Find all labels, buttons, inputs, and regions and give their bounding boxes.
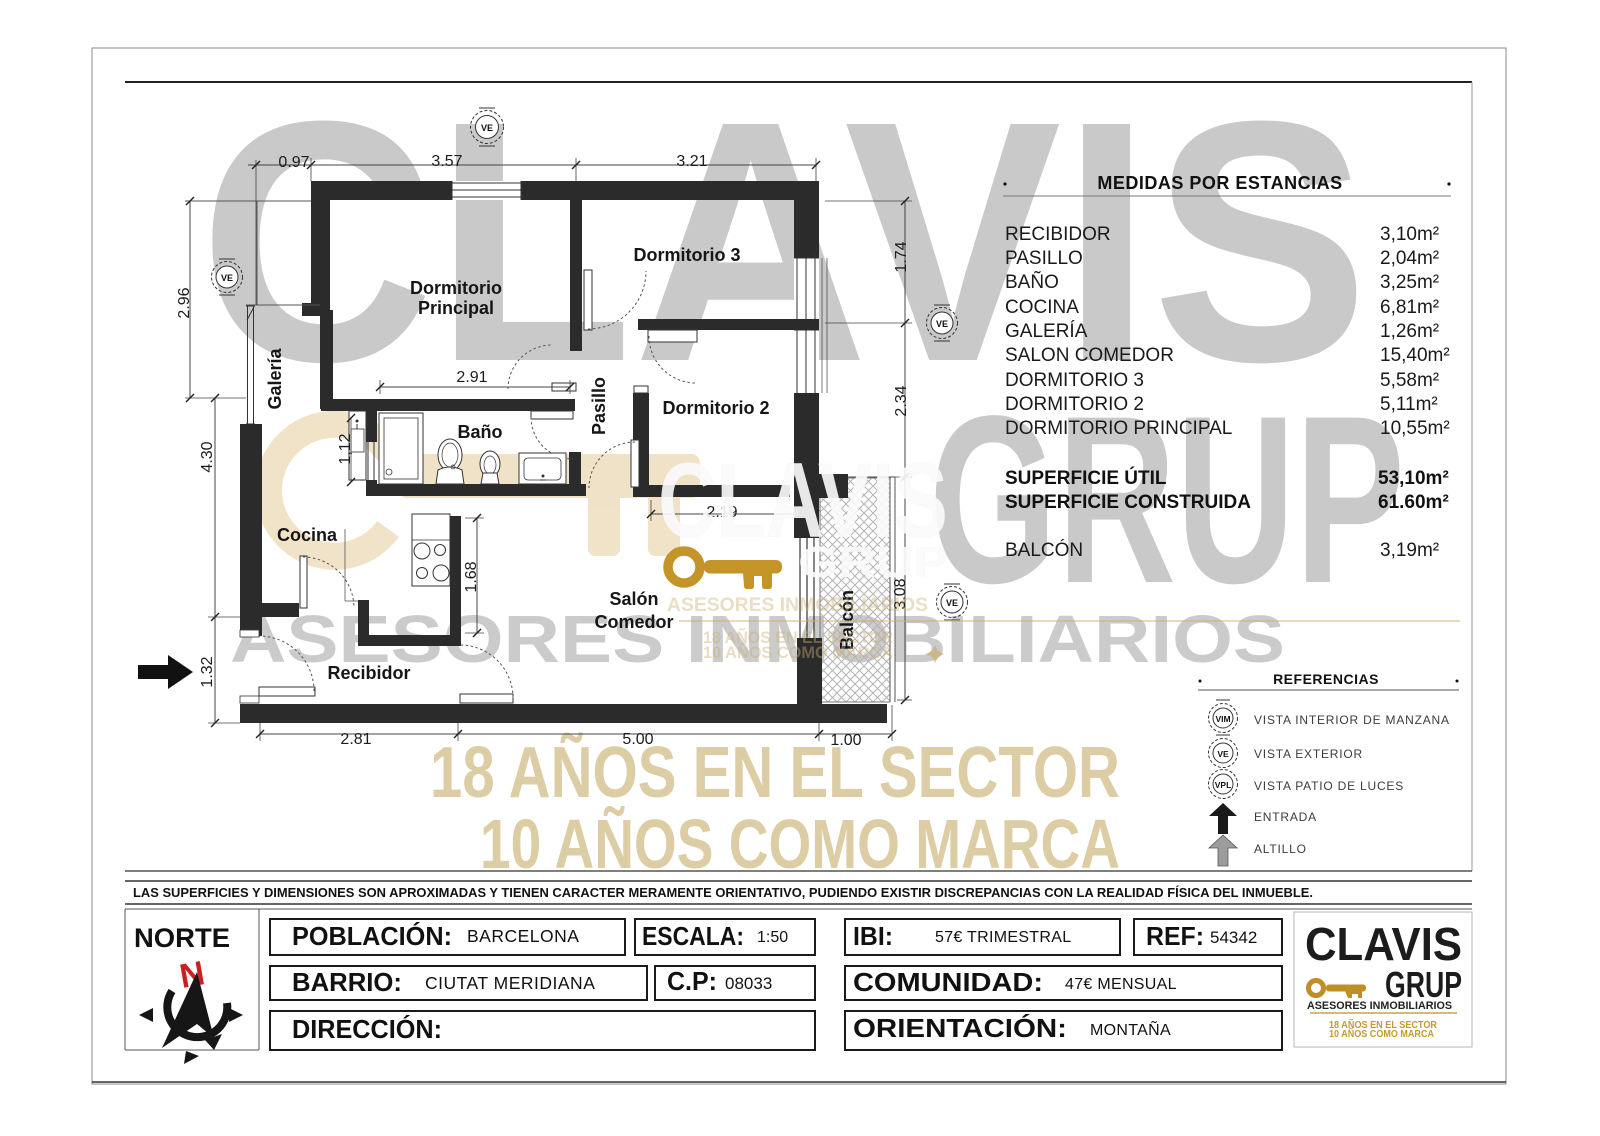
svg-text:SALON COMEDOR: SALON COMEDOR [1005, 345, 1174, 366]
svg-text:VE: VE [221, 273, 233, 283]
svg-text:CIUTAT MERIDIANA: CIUTAT MERIDIANA [425, 973, 595, 993]
svg-text:2,04m²: 2,04m² [1380, 248, 1439, 269]
svg-text:GRUP: GRUP [798, 538, 948, 587]
svg-text:ASESORES INMOBILIARIOS: ASESORES INMOBILIARIOS [667, 595, 928, 616]
svg-text:3.57: 3.57 [431, 153, 462, 170]
svg-text:5.00: 5.00 [622, 731, 653, 748]
svg-text:1:50: 1:50 [757, 929, 788, 946]
svg-text:Recibidor: Recibidor [327, 663, 410, 683]
svg-text:PASILLO: PASILLO [1005, 248, 1083, 269]
svg-text:COCINA: COCINA [1005, 297, 1079, 318]
svg-text:1,12: 1,12 [337, 433, 354, 464]
svg-text:NORTE: NORTE [134, 923, 230, 953]
svg-text:54342: 54342 [1210, 928, 1257, 947]
svg-text:REF:: REF: [1146, 921, 1204, 951]
svg-text:Dormitorio 3: Dormitorio 3 [633, 245, 740, 265]
svg-text:DORMITORIO 3: DORMITORIO 3 [1005, 370, 1144, 391]
svg-text:2.34: 2.34 [893, 385, 910, 416]
svg-text:Salón: Salón [609, 589, 658, 609]
svg-text:DORMITORIO 2: DORMITORIO 2 [1005, 394, 1144, 415]
svg-text:SUPERFICIE ÚTIL: SUPERFICIE ÚTIL [1005, 467, 1167, 489]
svg-text:Dormitorio 2: Dormitorio 2 [662, 398, 769, 418]
svg-text:53,10m²: 53,10m² [1378, 468, 1449, 489]
svg-text:57€ TRIMESTRAL: 57€ TRIMESTRAL [935, 929, 1071, 946]
svg-text:5,58m²: 5,58m² [1380, 370, 1439, 391]
svg-text:COMUNIDAD:: COMUNIDAD: [853, 967, 1043, 997]
svg-text:POBLACIÓN:: POBLACIÓN: [292, 921, 452, 951]
svg-text:1,26m²: 1,26m² [1380, 321, 1439, 342]
svg-text:ALTILLO: ALTILLO [1254, 842, 1307, 856]
svg-text:BARCELONA: BARCELONA [467, 926, 579, 946]
svg-text:1.00: 1.00 [830, 732, 861, 749]
svg-text:ASESORES INMOBILIARIOS: ASESORES INMOBILIARIOS [1307, 1000, 1452, 1012]
svg-text:ENTRADA: ENTRADA [1254, 810, 1317, 824]
svg-text:6,81m²: 6,81m² [1380, 297, 1439, 318]
svg-text:Galería: Galería [265, 347, 285, 409]
svg-text:VISTA INTERIOR DE MANZANA: VISTA INTERIOR DE MANZANA [1254, 713, 1450, 727]
svg-text:5,11m²: 5,11m² [1380, 394, 1438, 415]
svg-text:3.21: 3.21 [676, 153, 707, 170]
svg-text:3,25m²: 3,25m² [1380, 272, 1439, 293]
svg-text:VE: VE [1217, 749, 1229, 759]
svg-text:VISTA EXTERIOR: VISTA EXTERIOR [1254, 747, 1363, 761]
svg-text:GRUP: GRUP [1385, 964, 1462, 1005]
svg-text:REFERENCIAS: REFERENCIAS [1273, 671, 1379, 687]
svg-text:Dormitorio: Dormitorio [410, 278, 502, 298]
svg-text:LAS SUPERFICIES Y DIMENSIONES: LAS SUPERFICIES Y DIMENSIONES SON APROXI… [133, 885, 1313, 900]
svg-text:CLAVIS: CLAVIS [1305, 918, 1462, 970]
svg-text:10,55m²: 10,55m² [1380, 418, 1450, 439]
svg-text:RECIBIDOR: RECIBIDOR [1005, 224, 1111, 245]
svg-text:2.96: 2.96 [176, 287, 193, 318]
svg-text:GALERÍA: GALERÍA [1005, 321, 1088, 342]
svg-text:Cocina: Cocina [277, 525, 338, 545]
svg-text:3,19m²: 3,19m² [1380, 540, 1439, 561]
svg-text:0.97: 0.97 [278, 154, 309, 171]
svg-text:Principal: Principal [418, 298, 494, 318]
svg-text:15,40m²: 15,40m² [1380, 345, 1450, 366]
svg-text:Baño: Baño [458, 422, 503, 442]
svg-text:VISTA PATIO DE LUCES: VISTA PATIO DE LUCES [1254, 779, 1404, 793]
svg-text:1.74: 1.74 [893, 241, 910, 272]
svg-text:1.68: 1.68 [463, 561, 480, 592]
svg-text:Comedor: Comedor [594, 612, 673, 632]
svg-text:VE: VE [946, 598, 958, 608]
svg-text:MEDIDAS POR ESTANCIAS: MEDIDAS POR ESTANCIAS [1097, 173, 1342, 193]
svg-text:ORIENTACIÓN:: ORIENTACIÓN: [853, 1013, 1067, 1043]
svg-text:VE: VE [481, 123, 493, 133]
svg-text:DORMITORIO PRINCIPAL: DORMITORIO PRINCIPAL [1005, 418, 1232, 439]
svg-text:BAÑO: BAÑO [1005, 271, 1059, 293]
svg-text:08033: 08033 [725, 974, 772, 993]
svg-text:VIM: VIM [1215, 714, 1230, 724]
svg-text:VPL: VPL [1215, 780, 1232, 790]
svg-text:47€ MENSUAL: 47€ MENSUAL [1065, 976, 1177, 993]
svg-text:BARRIO:: BARRIO: [292, 967, 402, 997]
svg-text:2.81: 2.81 [340, 731, 371, 748]
svg-text:1.32: 1.32 [199, 656, 216, 687]
svg-text:3,10m²: 3,10m² [1380, 224, 1439, 245]
svg-text:IBI:: IBI: [853, 921, 893, 951]
svg-text:18 AÑOS EN EL SECTOR: 18 AÑOS EN EL SECTOR [430, 732, 1120, 813]
svg-text:2.91: 2.91 [456, 369, 487, 386]
svg-text:Pasillo: Pasillo [589, 377, 609, 435]
svg-text:DIRECCIÓN:: DIRECCIÓN: [292, 1014, 442, 1044]
svg-text:VE: VE [936, 319, 948, 329]
svg-text:MONTAÑA: MONTAÑA [1090, 1019, 1171, 1039]
svg-text:C.P:: C.P: [667, 966, 717, 996]
svg-text:SUPERFICIE CONSTRUIDA: SUPERFICIE CONSTRUIDA [1005, 492, 1251, 513]
svg-text:10 AÑOS COMO MARCA: 10 AÑOS COMO MARCA [1329, 1027, 1434, 1040]
svg-text:61.60m²: 61.60m² [1378, 492, 1449, 513]
svg-text:ESCALA:: ESCALA: [642, 921, 744, 951]
svg-text:10 AÑOS COMO MARCA: 10 AÑOS COMO MARCA [703, 642, 893, 662]
svg-text:BALCÓN: BALCÓN [1005, 539, 1083, 561]
svg-text:4.30: 4.30 [199, 441, 216, 472]
